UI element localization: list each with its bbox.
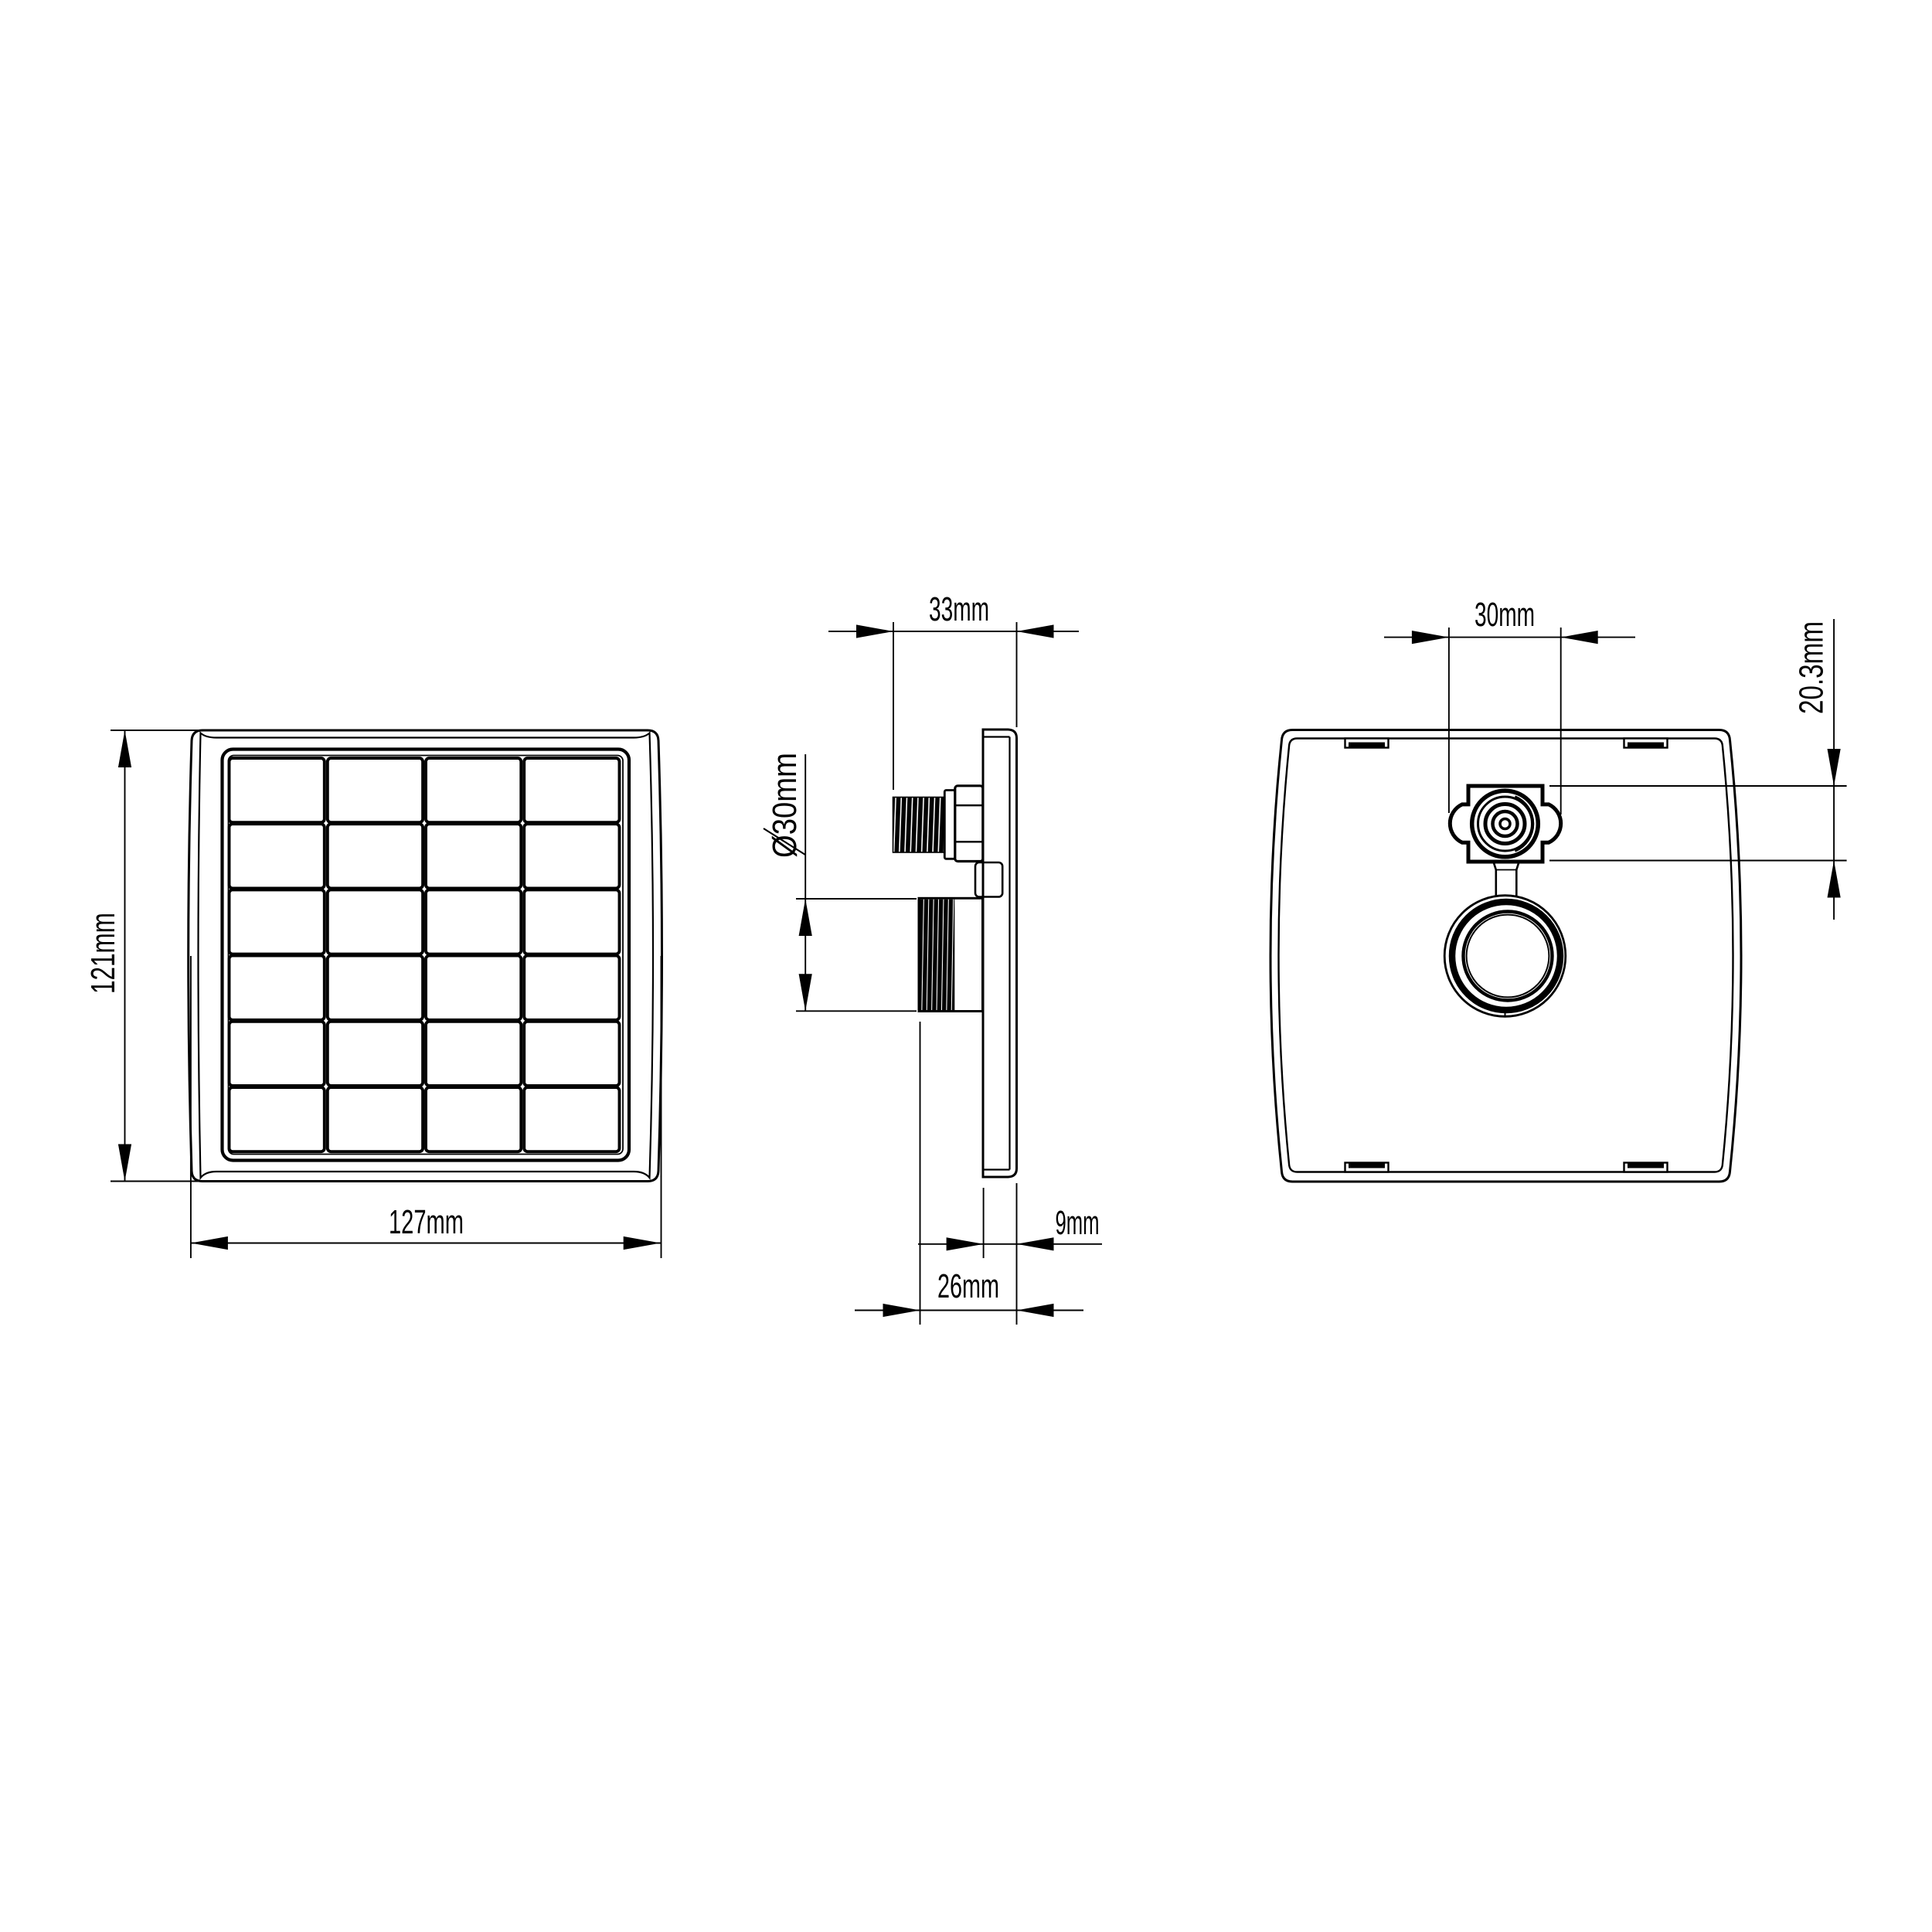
svg-text:121mm: 121mm — [84, 913, 122, 994]
svg-text:26mm: 26mm — [937, 1267, 999, 1305]
svg-text:33mm: 33mm — [929, 590, 989, 628]
svg-text:Ø30mm: Ø30mm — [766, 753, 804, 858]
svg-text:20.3mm: 20.3mm — [1793, 621, 1831, 714]
svg-text:127mm: 127mm — [389, 1203, 464, 1241]
svg-text:9mm: 9mm — [1056, 1204, 1100, 1242]
svg-text:30mm: 30mm — [1475, 596, 1535, 634]
